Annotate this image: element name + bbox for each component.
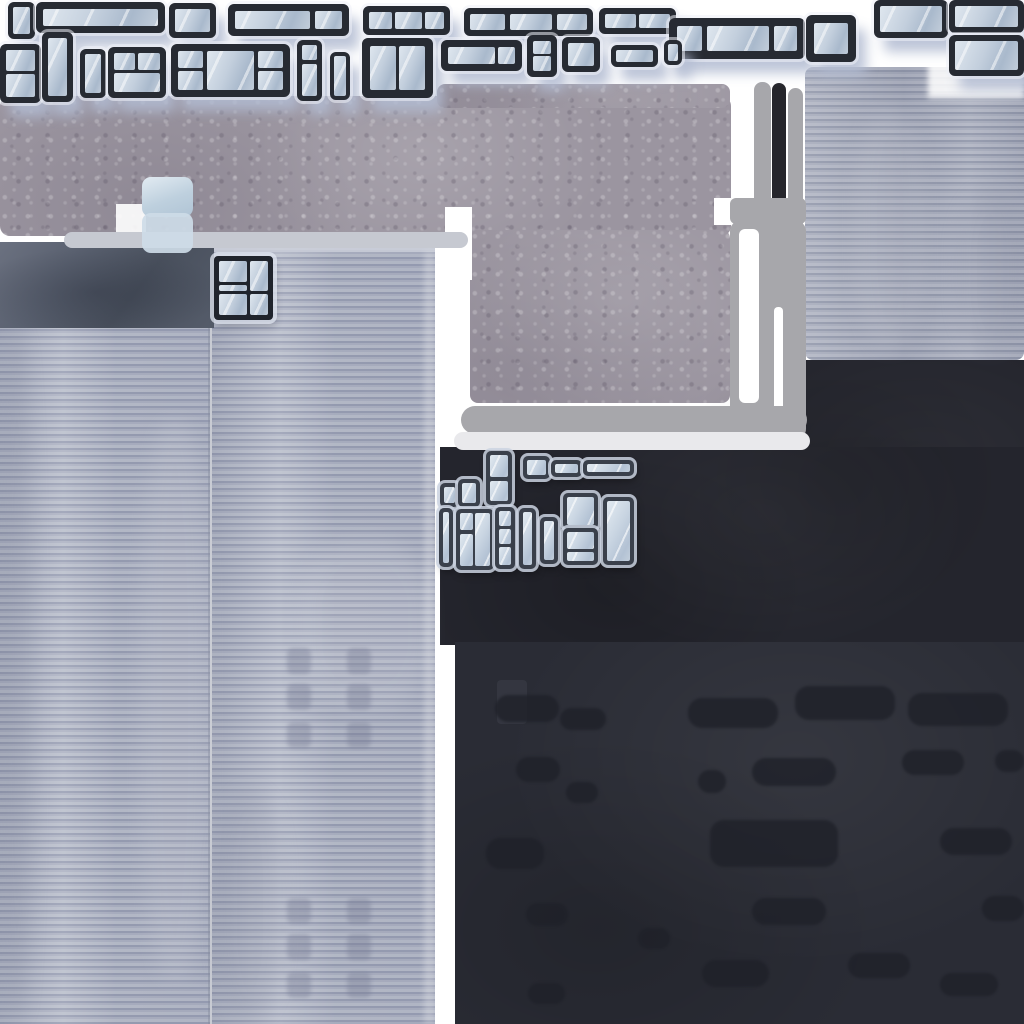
window-pane	[490, 455, 508, 477]
window-sprite	[441, 40, 522, 71]
window-pane	[178, 51, 203, 68]
brick-dash	[528, 983, 565, 1004]
window-sprite	[330, 52, 350, 100]
window-pane	[557, 14, 587, 30]
window-sprite	[171, 44, 290, 97]
light-trim-strip	[64, 232, 468, 248]
brick-dash	[940, 828, 1012, 855]
siding-window	[214, 256, 273, 320]
window-pane	[567, 497, 594, 525]
brick-dash	[702, 960, 769, 987]
texture-atlas	[0, 0, 1024, 1024]
concrete-top-edge	[437, 84, 730, 108]
brick-dash	[940, 973, 998, 996]
window-sprite	[874, 0, 948, 38]
window-pane	[175, 9, 210, 32]
glass-block-top	[142, 177, 193, 217]
brick-dash	[795, 686, 895, 720]
window-sprite	[949, 0, 1024, 33]
cluster-window	[439, 508, 453, 567]
brick-dash	[688, 698, 778, 728]
window-pane	[258, 51, 283, 68]
window-pane	[490, 481, 508, 501]
window-ghost	[287, 898, 311, 924]
window-pane	[443, 512, 449, 563]
black-bar	[772, 83, 786, 211]
window-pane	[219, 261, 247, 282]
window-pane	[814, 23, 848, 54]
window-sprite	[108, 47, 166, 98]
brick-dash	[495, 695, 559, 722]
window-sprite	[8, 2, 35, 39]
window-ghost	[287, 648, 311, 674]
window-pane	[523, 512, 532, 565]
window-sprite	[464, 8, 593, 36]
cluster-window	[495, 507, 515, 569]
window-pane	[639, 14, 670, 28]
window-pane	[425, 12, 445, 29]
window-sprite	[36, 2, 165, 33]
frame-slot-b	[774, 307, 783, 421]
window-sprite	[363, 6, 450, 35]
window-pane	[235, 11, 310, 29]
glass-block-bottom	[142, 213, 193, 253]
window-pane	[567, 532, 594, 549]
window-pane	[955, 6, 1018, 27]
window-ghost	[287, 684, 311, 710]
window-pane	[498, 47, 515, 64]
window-pane	[250, 294, 268, 315]
window-pane	[114, 73, 160, 92]
window-pane	[544, 521, 554, 560]
brick-dash	[698, 770, 726, 793]
brick-dash	[526, 903, 568, 926]
window-pane	[587, 464, 630, 472]
brick-dash	[710, 820, 838, 867]
window-pane	[533, 56, 551, 71]
brick-dash	[516, 757, 560, 782]
window-pane	[555, 464, 578, 473]
window-sprite	[297, 40, 322, 101]
window-sprite	[0, 44, 41, 103]
cluster-window	[440, 483, 459, 507]
window-pane	[315, 11, 342, 29]
window-pane	[475, 513, 490, 566]
window-pane	[510, 14, 552, 30]
window-ghost	[347, 972, 371, 998]
window-sprite	[669, 18, 805, 59]
window-pane	[460, 513, 473, 530]
brick-dash	[908, 693, 1008, 726]
window-pane	[607, 501, 630, 561]
window-sprite	[611, 45, 658, 67]
window-ghost	[347, 648, 371, 674]
window-ghost	[347, 934, 371, 960]
cluster-window	[563, 493, 598, 529]
window-pane	[499, 547, 511, 565]
window-ghost	[287, 722, 311, 748]
window-pane	[399, 46, 425, 90]
window-sprite	[169, 3, 216, 38]
shading-patch	[855, 110, 925, 350]
cluster-window	[486, 451, 512, 505]
brick-dash	[566, 782, 598, 803]
window-pane	[499, 529, 511, 544]
window-pane	[955, 41, 1018, 70]
window-pane	[302, 45, 317, 60]
window-sprite	[362, 38, 433, 98]
cluster-window	[540, 517, 558, 564]
window-ghost	[347, 722, 371, 748]
cluster-window	[456, 509, 494, 570]
window-sprite	[806, 15, 856, 62]
cluster-window	[603, 497, 634, 565]
window-pane	[114, 53, 135, 70]
window-pane	[880, 6, 942, 32]
cluster-window	[563, 528, 598, 565]
frame-slot-a	[739, 229, 759, 403]
cluster-window	[523, 456, 550, 479]
window-pane	[302, 64, 317, 96]
trim-band-gray	[461, 406, 807, 434]
cluster-window	[458, 479, 480, 507]
window-ghost	[347, 684, 371, 710]
window-pane	[616, 50, 653, 62]
window-sprite	[562, 37, 600, 72]
window-pane	[138, 53, 160, 70]
window-pane	[85, 54, 101, 93]
shading-patch	[140, 420, 210, 980]
window-pane	[444, 487, 455, 503]
brick-dash	[848, 953, 910, 978]
window-pane	[258, 71, 283, 90]
brick-dash	[752, 898, 826, 925]
dark-slate-band	[0, 242, 214, 328]
concrete-upper	[0, 96, 731, 236]
window-pane	[207, 51, 253, 90]
cluster-window	[583, 460, 634, 476]
brick-dash	[638, 928, 670, 949]
shading-patch	[215, 790, 285, 1020]
window-pane	[219, 285, 247, 291]
concrete-lower-right	[470, 230, 730, 403]
window-sprite	[664, 40, 682, 65]
window-pane	[460, 534, 473, 566]
cluster-window	[551, 460, 582, 477]
window-pane	[250, 261, 268, 291]
shading-patch	[0, 330, 34, 1020]
brick-dash	[982, 896, 1024, 921]
window-pane	[707, 26, 769, 51]
window-pane	[48, 38, 67, 96]
brick-dash	[560, 708, 606, 730]
window-pane	[6, 50, 35, 71]
window-pane	[567, 552, 594, 561]
window-pane	[334, 56, 346, 96]
brick-dash	[752, 758, 836, 786]
window-pane	[370, 46, 396, 90]
window-pane	[369, 12, 392, 29]
window-pane	[13, 7, 30, 34]
window-pane	[527, 460, 546, 475]
window-pane	[395, 12, 422, 29]
window-pane	[178, 71, 203, 90]
pipe-vertical-1	[754, 82, 771, 208]
window-pane	[568, 43, 594, 66]
window-pane	[774, 26, 797, 51]
window-pane	[462, 483, 476, 503]
trim-band-offwhite	[454, 432, 810, 450]
window-pane	[533, 41, 551, 54]
window-sprite	[80, 49, 106, 98]
brick-dash	[995, 750, 1024, 772]
window-sprite	[42, 32, 73, 102]
window-ghost	[287, 934, 311, 960]
window-pane	[470, 14, 505, 30]
window-pane	[499, 511, 511, 526]
window-pane	[605, 14, 636, 28]
window-sprite	[527, 35, 557, 77]
brick-dash	[902, 750, 964, 775]
window-pane	[43, 9, 158, 26]
shading-patch	[955, 190, 1023, 355]
window-ghost	[347, 898, 371, 924]
window-ghost	[287, 972, 311, 998]
window-pane	[6, 74, 35, 97]
brick-dash	[486, 838, 544, 869]
window-sprite	[228, 4, 349, 36]
window-sprite	[599, 8, 676, 34]
window-pane	[219, 294, 247, 315]
window-sprite	[949, 35, 1024, 76]
window-pane	[668, 44, 678, 61]
cluster-window	[519, 508, 536, 569]
window-pane	[448, 47, 495, 64]
